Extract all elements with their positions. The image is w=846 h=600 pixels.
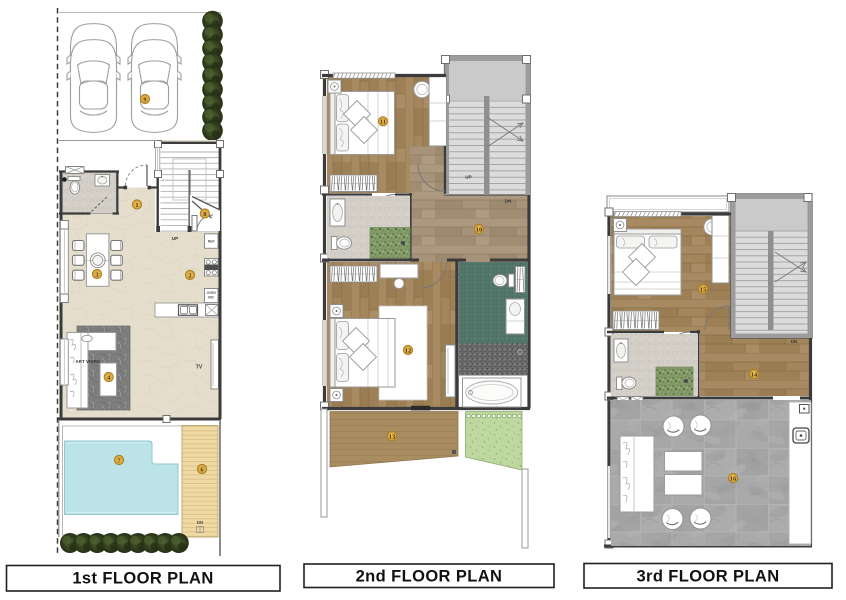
svg-text:UP: UP bbox=[172, 236, 179, 241]
svg-text:2: 2 bbox=[188, 272, 191, 279]
svg-text:2nd FLOOR PLAN: 2nd FLOOR PLAN bbox=[356, 568, 503, 586]
svg-text:UP: UP bbox=[465, 175, 472, 180]
svg-text:DN: DN bbox=[505, 199, 512, 204]
svg-text:9: 9 bbox=[143, 96, 146, 103]
svg-text:1st FLOOR PLAN: 1st FLOOR PLAN bbox=[72, 570, 213, 588]
svg-text:TV: TV bbox=[196, 365, 203, 371]
svg-text:MIC: MIC bbox=[208, 296, 215, 300]
svg-text:REF: REF bbox=[208, 240, 215, 244]
svg-text:OVEN: OVEN bbox=[207, 291, 217, 295]
svg-text:8: 8 bbox=[203, 211, 206, 218]
svg-text:ART WORK: ART WORK bbox=[76, 359, 101, 364]
svg-text:3rd FLOOR PLAN: 3rd FLOOR PLAN bbox=[636, 568, 779, 586]
svg-text:DN: DN bbox=[197, 520, 203, 525]
svg-text:13: 13 bbox=[389, 433, 395, 440]
svg-text:DN: DN bbox=[791, 339, 798, 344]
svg-text:14: 14 bbox=[751, 371, 758, 378]
svg-text:1: 1 bbox=[135, 202, 138, 209]
svg-text:10: 10 bbox=[476, 226, 482, 233]
svg-text:3: 3 bbox=[95, 271, 98, 278]
svg-text:11: 11 bbox=[380, 119, 386, 126]
svg-text:15: 15 bbox=[700, 286, 706, 293]
svg-text:16: 16 bbox=[730, 475, 737, 482]
svg-text:12: 12 bbox=[405, 347, 411, 354]
